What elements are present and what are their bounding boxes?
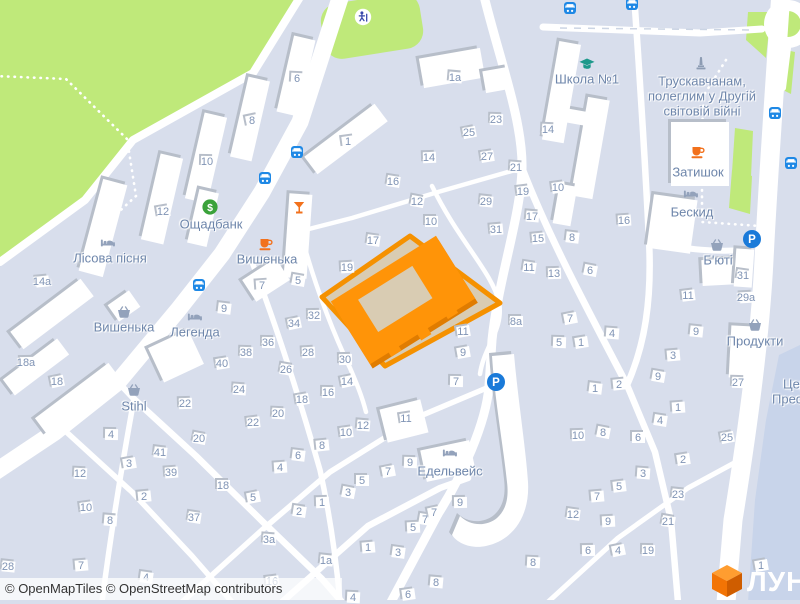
house-number: 21 bbox=[510, 162, 522, 174]
house-number: 18 bbox=[296, 394, 308, 406]
house-number: 5 bbox=[556, 337, 562, 349]
house-number: 29 bbox=[480, 196, 492, 208]
poi-label: Продукти bbox=[727, 334, 784, 349]
parking-icon[interactable]: P bbox=[487, 373, 506, 392]
house-number: 7 bbox=[422, 514, 428, 526]
house-number: 2 bbox=[680, 454, 686, 466]
svg-text:P: P bbox=[492, 377, 500, 389]
house-number: 4 bbox=[350, 592, 356, 604]
house-number: 3 bbox=[670, 350, 676, 362]
house-number: 24 bbox=[233, 384, 245, 396]
house-number: 8 bbox=[433, 577, 439, 589]
house-number: 8 bbox=[530, 557, 536, 569]
house-number: 10 bbox=[340, 427, 352, 439]
house-number: 12 bbox=[567, 509, 579, 521]
house-number: 9 bbox=[605, 516, 611, 528]
house-number: 21 bbox=[662, 516, 674, 528]
poi-label-line: Пресвя bbox=[772, 392, 800, 407]
house-number: 10 bbox=[201, 156, 213, 168]
map-overlay: 81012611a14a9716141210252327211929311719… bbox=[0, 0, 800, 600]
poi-label: Stihl bbox=[121, 399, 146, 414]
map-provider-logo[interactable]: ЛУН bbox=[712, 565, 800, 598]
house-number: 18 bbox=[51, 376, 63, 388]
house-number: 16 bbox=[322, 387, 334, 399]
bus-stop-icon[interactable] bbox=[259, 172, 272, 185]
house-number: 3 bbox=[395, 547, 401, 559]
house-number: 27 bbox=[481, 151, 493, 163]
house-number: 31 bbox=[737, 270, 749, 282]
poi-label: Затишок bbox=[672, 165, 723, 180]
house-number: 40 bbox=[216, 358, 228, 370]
bus-stop-icon[interactable] bbox=[626, 0, 639, 11]
poi-label: Едельвейс bbox=[417, 464, 482, 479]
bus-stop-icon[interactable] bbox=[291, 146, 304, 159]
house-number: 6 bbox=[295, 450, 301, 462]
cafe-icon[interactable] bbox=[259, 238, 274, 251]
attribution[interactable]: © OpenMapTiles © OpenStreetMap contribut… bbox=[0, 578, 342, 600]
house-number: 12 bbox=[74, 468, 86, 480]
house-number: 11 bbox=[457, 326, 468, 338]
house-number: 22 bbox=[247, 417, 259, 429]
house-number: 16 bbox=[618, 215, 630, 227]
house-number: 1 bbox=[345, 136, 351, 148]
house-number: 7 bbox=[431, 507, 437, 519]
bus-stop-icon[interactable] bbox=[193, 279, 206, 292]
house-number: 11 bbox=[523, 262, 534, 274]
poi-label: Легенда bbox=[170, 325, 219, 340]
house-number: 4 bbox=[609, 328, 615, 340]
house-number: 14a bbox=[33, 276, 51, 288]
svg-text:$: $ bbox=[207, 202, 213, 214]
poi-label: Ощадбанк bbox=[180, 217, 243, 232]
house-number: 14 bbox=[423, 152, 435, 164]
bank-icon[interactable]: $ bbox=[202, 199, 218, 215]
poi-label: Вишенька bbox=[237, 252, 298, 267]
poi-label: Вишенька bbox=[94, 320, 155, 335]
shop-icon[interactable] bbox=[710, 239, 724, 251]
logo-text: ЛУН bbox=[747, 568, 800, 596]
school-icon[interactable] bbox=[579, 58, 596, 71]
poi-label: Бескид bbox=[671, 205, 714, 220]
poi-label: Школа №1 bbox=[555, 72, 619, 87]
house-number: 20 bbox=[193, 433, 205, 445]
house-number: 7 bbox=[453, 376, 459, 388]
house-number: 25 bbox=[721, 432, 733, 444]
house-number: 2 bbox=[296, 506, 302, 518]
lodging-icon[interactable] bbox=[188, 312, 203, 323]
shop-icon[interactable] bbox=[748, 319, 762, 331]
house-number: 10 bbox=[572, 430, 584, 442]
house-number: 16 bbox=[387, 176, 399, 188]
poi-label-line: Трускавчанам, bbox=[658, 74, 746, 89]
house-number: 5 bbox=[616, 481, 622, 493]
house-number: 10 bbox=[552, 182, 564, 194]
house-number: 7 bbox=[567, 313, 573, 325]
house-number: 19 bbox=[642, 545, 654, 557]
house-number: 7 bbox=[385, 466, 391, 478]
house-number: 17 bbox=[526, 211, 538, 223]
house-number: 1 bbox=[319, 497, 325, 509]
house-number: 18 bbox=[217, 480, 229, 492]
parking-icon[interactable]: P bbox=[743, 230, 762, 249]
house-number: 4 bbox=[108, 429, 114, 441]
house-number: 12 bbox=[357, 420, 369, 432]
house-number: 15 bbox=[532, 233, 544, 245]
cafe-icon[interactable] bbox=[691, 146, 706, 159]
house-number: 3 bbox=[345, 487, 351, 499]
house-number: 7 bbox=[78, 560, 84, 572]
house-number: 14 bbox=[341, 376, 353, 388]
house-number: 9 bbox=[457, 497, 463, 509]
house-number: 22 bbox=[179, 398, 191, 410]
house-number: 18a bbox=[17, 357, 35, 369]
house-number: 23 bbox=[672, 489, 684, 501]
house-number: 29a bbox=[737, 292, 755, 304]
house-number: 5 bbox=[359, 475, 365, 487]
house-number: 8 bbox=[569, 232, 575, 244]
house-number: 34 bbox=[288, 318, 300, 330]
poi-label-line: світовій війні bbox=[663, 104, 740, 119]
poi-label: Б'юті bbox=[703, 253, 732, 268]
house-number: 7 bbox=[259, 280, 265, 292]
house-number: 5 bbox=[250, 492, 256, 504]
house-number: 2 bbox=[616, 379, 622, 391]
house-number: 41 bbox=[154, 447, 166, 459]
house-number: 4 bbox=[277, 462, 283, 474]
bus-stop-icon[interactable] bbox=[564, 2, 577, 15]
house-number: 19 bbox=[517, 186, 529, 198]
house-number: 9 bbox=[655, 371, 661, 383]
house-number: 23 bbox=[490, 114, 502, 126]
house-number: 9 bbox=[221, 303, 227, 315]
lodging-icon[interactable] bbox=[443, 448, 458, 459]
svg-text:P: P bbox=[748, 234, 756, 246]
house-number: 9 bbox=[693, 326, 699, 338]
house-number: 25 bbox=[463, 127, 475, 139]
house-number: 6 bbox=[585, 545, 591, 557]
house-number: 1 bbox=[675, 402, 681, 414]
cube-logo-icon bbox=[712, 565, 742, 598]
house-number: 10 bbox=[80, 502, 92, 514]
house-number: 1 bbox=[578, 337, 584, 349]
house-number: 27 bbox=[732, 377, 744, 389]
house-number: 6 bbox=[294, 73, 300, 85]
house-number: 3a bbox=[263, 534, 275, 546]
house-number: 28 bbox=[2, 561, 14, 573]
house-number: 26 bbox=[280, 364, 292, 376]
house-number: 8 bbox=[600, 427, 606, 439]
house-number: 8 bbox=[249, 115, 255, 127]
house-number: 1a bbox=[320, 555, 332, 567]
poi-label-line: полеглим у Другій bbox=[648, 89, 756, 104]
house-number: 9 bbox=[460, 347, 466, 359]
house-number: 32 bbox=[308, 310, 320, 322]
house-number: 10 bbox=[425, 216, 437, 228]
house-number: 11 bbox=[682, 290, 693, 302]
house-number: 14 bbox=[542, 124, 554, 136]
house-number: 37 bbox=[188, 512, 200, 524]
house-number: 1 bbox=[592, 383, 598, 395]
monument-icon[interactable] bbox=[695, 56, 707, 70]
house-number: 13 bbox=[548, 268, 560, 280]
house-number: 3 bbox=[640, 468, 646, 480]
house-number: 36 bbox=[262, 337, 274, 349]
shop-icon[interactable] bbox=[127, 384, 141, 396]
playground-icon[interactable] bbox=[355, 9, 372, 26]
shop-icon[interactable] bbox=[117, 306, 131, 318]
house-number: 38 bbox=[240, 347, 252, 359]
bus-stop-icon[interactable] bbox=[785, 157, 798, 170]
house-number: 9 bbox=[407, 457, 413, 469]
house-number: 12 bbox=[411, 196, 423, 208]
house-number: 17 bbox=[367, 235, 379, 247]
house-number: 30 bbox=[339, 354, 351, 366]
house-number: 8 bbox=[319, 440, 325, 452]
house-number: 8a bbox=[510, 316, 522, 328]
house-number: 5 bbox=[295, 275, 301, 287]
house-number: 4 bbox=[657, 415, 663, 427]
house-number: 8 bbox=[107, 515, 113, 527]
house-number: 6 bbox=[405, 589, 411, 601]
house-number: 12 bbox=[157, 206, 169, 218]
house-number: 1 bbox=[365, 542, 371, 554]
house-number: 3 bbox=[126, 458, 132, 470]
house-number: 39 bbox=[165, 467, 177, 479]
house-number: 6 bbox=[635, 432, 641, 444]
lodging-icon[interactable] bbox=[101, 238, 116, 249]
poi-label-line: Цер bbox=[783, 377, 800, 392]
lodging-icon[interactable] bbox=[684, 189, 699, 200]
house-number: 6 bbox=[587, 265, 593, 277]
house-number: 2 bbox=[141, 491, 147, 503]
house-number: 19 bbox=[341, 262, 353, 274]
house-number: 1a bbox=[449, 72, 461, 84]
house-number: 4 bbox=[615, 545, 621, 557]
house-number: 7 bbox=[594, 491, 600, 503]
bar-icon[interactable] bbox=[292, 201, 306, 215]
house-number: 5 bbox=[410, 522, 416, 534]
house-number: 28 bbox=[302, 347, 314, 359]
bus-stop-icon[interactable] bbox=[769, 107, 782, 120]
poi-label: Лісова пісня bbox=[73, 251, 147, 266]
house-number: 11 bbox=[400, 413, 411, 425]
house-number: 20 bbox=[272, 408, 284, 420]
house-number: 31 bbox=[490, 224, 502, 236]
